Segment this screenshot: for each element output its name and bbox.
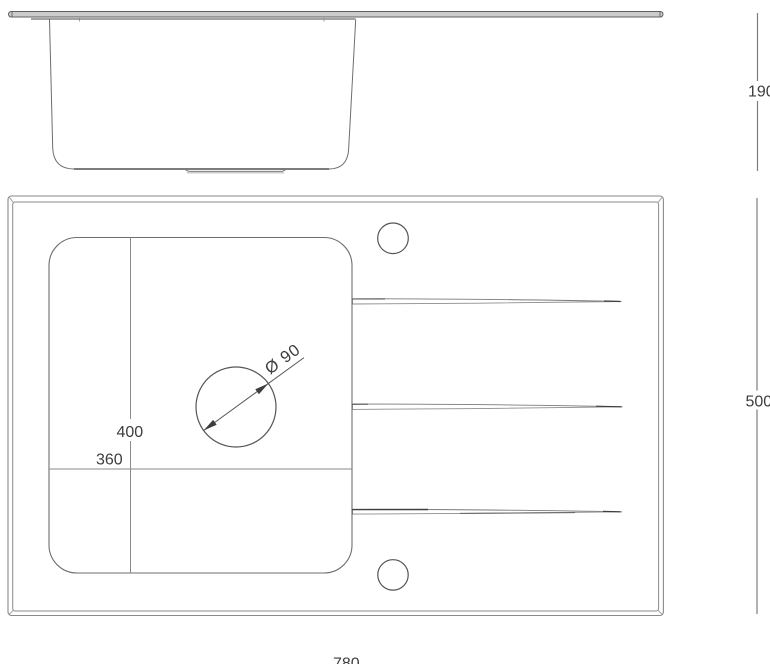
svg-text:780: 780 <box>333 656 360 664</box>
svg-text:400: 400 <box>117 424 144 441</box>
svg-text:360: 360 <box>96 452 123 469</box>
svg-text:190: 190 <box>748 84 770 101</box>
svg-text:500: 500 <box>746 394 770 411</box>
